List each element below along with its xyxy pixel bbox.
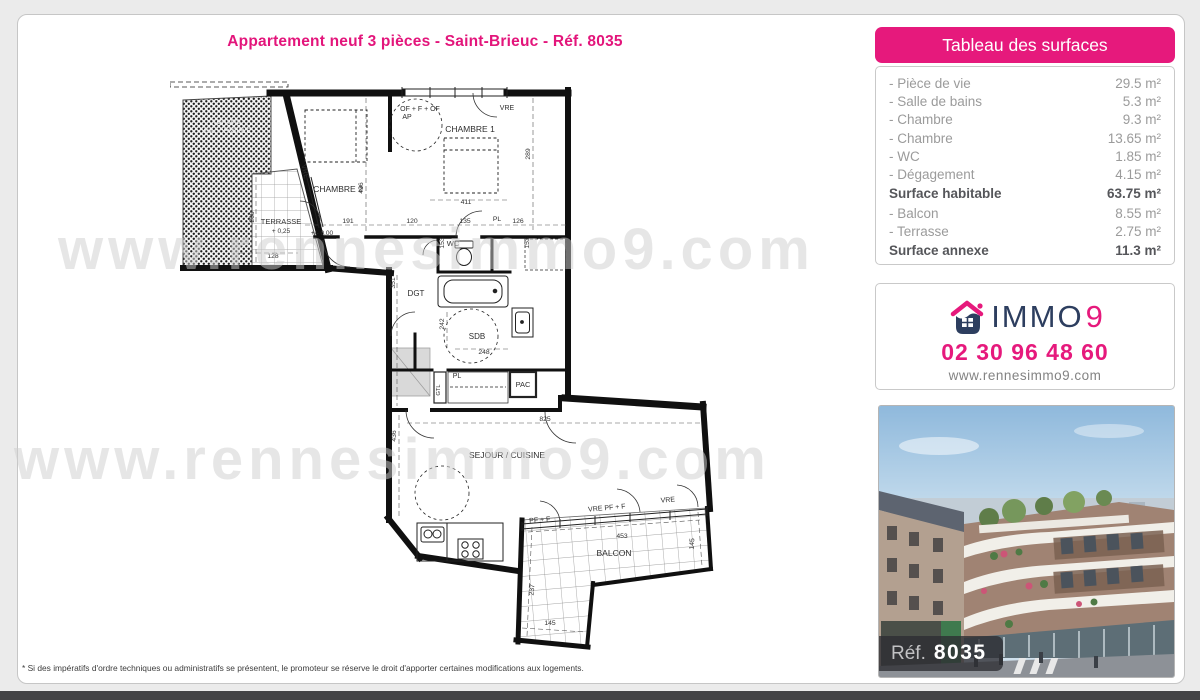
surface-row: - WC1.85 m²	[889, 148, 1161, 166]
dim-120: 120	[406, 218, 418, 225]
dim-145-right: 145	[689, 538, 697, 550]
washbasin-fixture	[512, 308, 533, 337]
surface-value: 29.5 m²	[1115, 75, 1161, 93]
room-labels: CHAMBRE 2 CHAMBRE 1 WC DGT SDB PL GTL PA…	[299, 105, 675, 558]
immo9-logo: IMMO9	[876, 297, 1174, 337]
dim-145-bottom: 145	[544, 620, 556, 627]
surface-value: 5.3 m²	[1123, 93, 1161, 111]
roof-label-line2: INACCESSIBLE	[203, 128, 251, 135]
dim-242: 242	[439, 318, 446, 330]
room-label-chambre2: CHAMBRE 2	[313, 184, 363, 194]
house-icon	[947, 297, 987, 337]
surface-value: 63.75 m²	[1107, 184, 1161, 205]
room-label-wc: WC	[447, 239, 460, 248]
surface-value: 2.75 m²	[1115, 223, 1161, 241]
brand-9-text: 9	[1086, 299, 1103, 335]
surface-label: - WC	[889, 148, 920, 166]
surface-row-total-annexe: Surface annexe11.3 m²	[889, 241, 1161, 262]
dim-153-right: 153	[524, 237, 531, 249]
dim-453: 453	[616, 533, 628, 540]
website-link[interactable]: www.rennesimmo9.com	[876, 368, 1174, 383]
surface-label: - Dégagement	[889, 166, 975, 184]
room-label-sdb: SDB	[469, 332, 485, 341]
ref-label: Réf.	[891, 643, 926, 665]
surface-row: - Chambre13.65 m²	[889, 130, 1161, 148]
bathtub-fixture	[438, 276, 508, 307]
bed-chambre1	[444, 138, 498, 193]
bottom-bar	[0, 691, 1200, 700]
label-pac: PAC	[516, 380, 531, 389]
page-title: Appartement neuf 3 pièces - Saint-Brieuc…	[140, 33, 710, 51]
bed-chambre2	[305, 110, 367, 162]
surface-label: Surface habitable	[889, 184, 1002, 205]
dim-128: 128	[267, 253, 279, 260]
entry-level-label: +/- 0,00	[311, 230, 334, 237]
surface-row: - Dégagement4.15 m²	[889, 166, 1161, 184]
building-photo: Réf. 8035	[878, 405, 1175, 678]
label-pl-closet: PL	[453, 373, 462, 380]
dim-289: 289	[525, 148, 532, 160]
roof-label-line1: TOITURE	[213, 119, 242, 126]
brand-immo-text: IMMO	[991, 299, 1083, 335]
dim-153-left: 153	[439, 237, 446, 249]
dim-237: 237	[529, 584, 537, 596]
surfaces-panel-header: Tableau des surfaces	[875, 27, 1175, 63]
room-label-dgt: DGT	[408, 289, 425, 298]
surfaces-panel: - Pièce de vie29.5 m² - Salle de bains5.…	[875, 66, 1175, 265]
dim-825: 825	[539, 416, 551, 423]
label-gtl: GTL	[436, 384, 442, 396]
dim-248: 248	[478, 349, 490, 356]
surface-value: 11.3 m²	[1115, 241, 1161, 262]
surface-value: 4.15 m²	[1115, 166, 1161, 184]
room-label-terrasse: TERRASSE	[261, 217, 301, 226]
surface-label: - Terrasse	[889, 223, 949, 241]
dim-260: 260	[249, 211, 256, 223]
surface-value: 13.65 m²	[1108, 130, 1161, 148]
surface-label: - Chambre	[889, 130, 953, 148]
page: Appartement neuf 3 pièces - Saint-Brieuc…	[0, 0, 1200, 700]
surface-row: - Pièce de vie29.5 m²	[889, 75, 1161, 93]
surface-row: - Salle de bains5.3 m²	[889, 93, 1161, 111]
dining-table	[415, 466, 469, 520]
room-label-balcon: BALCON	[597, 548, 632, 558]
label-pl-corridor: PL	[493, 216, 502, 223]
dim-436-sejour: 436	[391, 430, 398, 442]
room-label-sejour: SEJOUR / CUISINE	[469, 450, 545, 460]
surface-label: Surface annexe	[889, 241, 989, 262]
reference-badge: Réf. 8035	[879, 636, 1003, 671]
contact-panel: IMMO9 02 30 96 48 60 www.rennesimmo9.com	[875, 283, 1175, 390]
window-label-vre-slant: VRE	[299, 164, 309, 180]
surface-label: - Pièce de vie	[889, 75, 971, 93]
window-label-vre-balcony: VRE	[660, 496, 675, 504]
dim-351: 351	[390, 277, 397, 289]
surface-row: - Balcon8.55 m²	[889, 205, 1161, 223]
window-label-of: OF + F + OF	[400, 106, 440, 113]
dim-191: 191	[342, 218, 354, 225]
room-label-chambre1: CHAMBRE 1	[445, 124, 495, 134]
surface-label: - Balcon	[889, 205, 939, 223]
window-label-vre-top: VRE	[500, 105, 515, 112]
surface-label: - Chambre	[889, 111, 953, 129]
dim-411: 411	[461, 199, 472, 206]
fixtures	[305, 99, 566, 561]
window-label-vre-pf-f: VRE PF + F	[588, 503, 626, 513]
surface-value: 9.3 m²	[1123, 111, 1161, 129]
closet-corridor	[525, 239, 566, 270]
dim-436-chambre: 436	[358, 182, 365, 194]
phone-number[interactable]: 02 30 96 48 60	[876, 339, 1174, 366]
surface-value: 1.85 m²	[1115, 148, 1161, 166]
surface-value: 8.55 m²	[1115, 205, 1161, 223]
dim-135: 135	[459, 218, 471, 225]
window-label-ap: AP	[402, 114, 412, 121]
dim-126: 126	[512, 218, 524, 225]
surface-row: - Chambre9.3 m²	[889, 111, 1161, 129]
surface-label: - Salle de bains	[889, 93, 982, 111]
terrasse-level-label: + 0,25	[272, 228, 291, 235]
surface-row-total-habitable: Surface habitable63.75 m²	[889, 184, 1161, 205]
surface-row: - Terrasse2.75 m²	[889, 223, 1161, 241]
ref-number: 8035	[934, 641, 987, 665]
floor-plan: TOITURE INACCESSIBLE TERRASSE + 0,25	[170, 80, 790, 680]
